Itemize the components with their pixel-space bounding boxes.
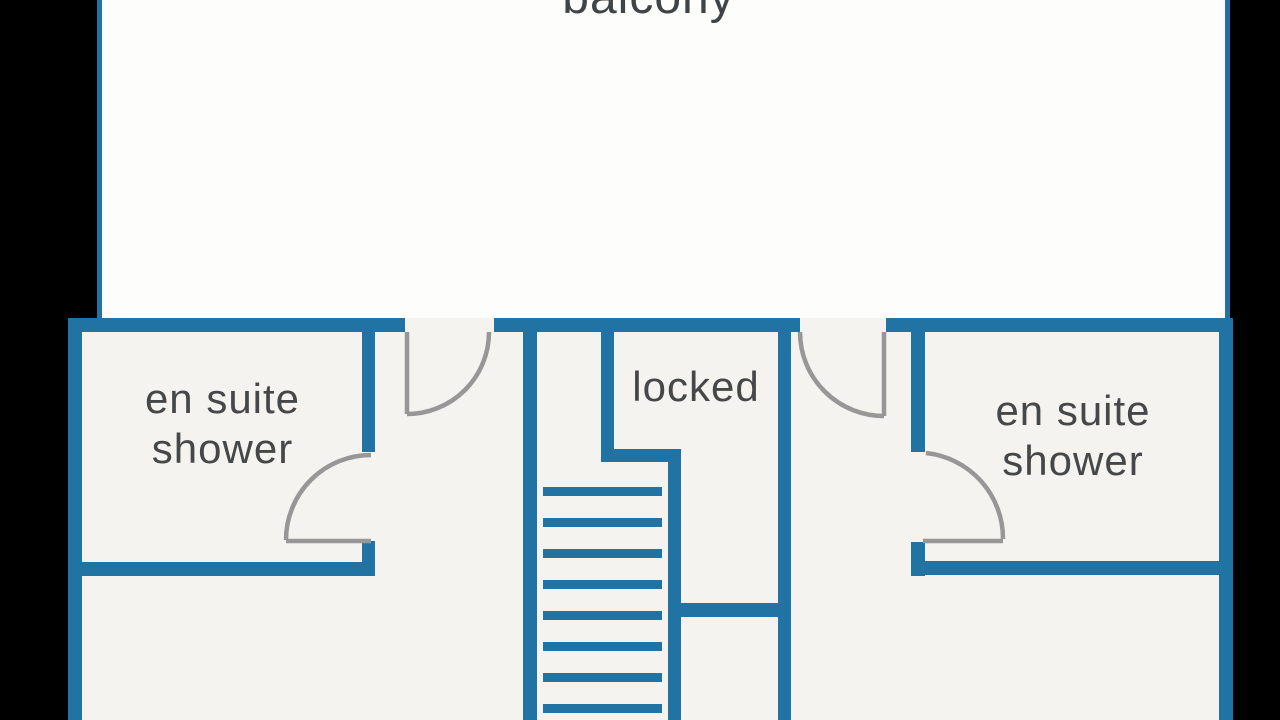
left-ensuite-label-line2: shower [152,425,293,472]
right-ensuite-label-line1: en suite [995,387,1150,434]
right-ensuite-label: en suiteshower [925,386,1221,486]
hallway-door-left [407,332,489,414]
hallway-door-right [800,332,884,416]
door-swing-overlay [0,0,1280,720]
floor-plan-diagram: balcony [0,0,1280,720]
door-arc [800,332,884,416]
door-arc [407,332,489,414]
right-ensuite-label-line2: shower [1002,437,1143,484]
left-ensuite-label: en suiteshower [82,374,363,474]
locked-room-label: locked [614,362,778,412]
left-ensuite-label-line1: en suite [145,375,300,422]
